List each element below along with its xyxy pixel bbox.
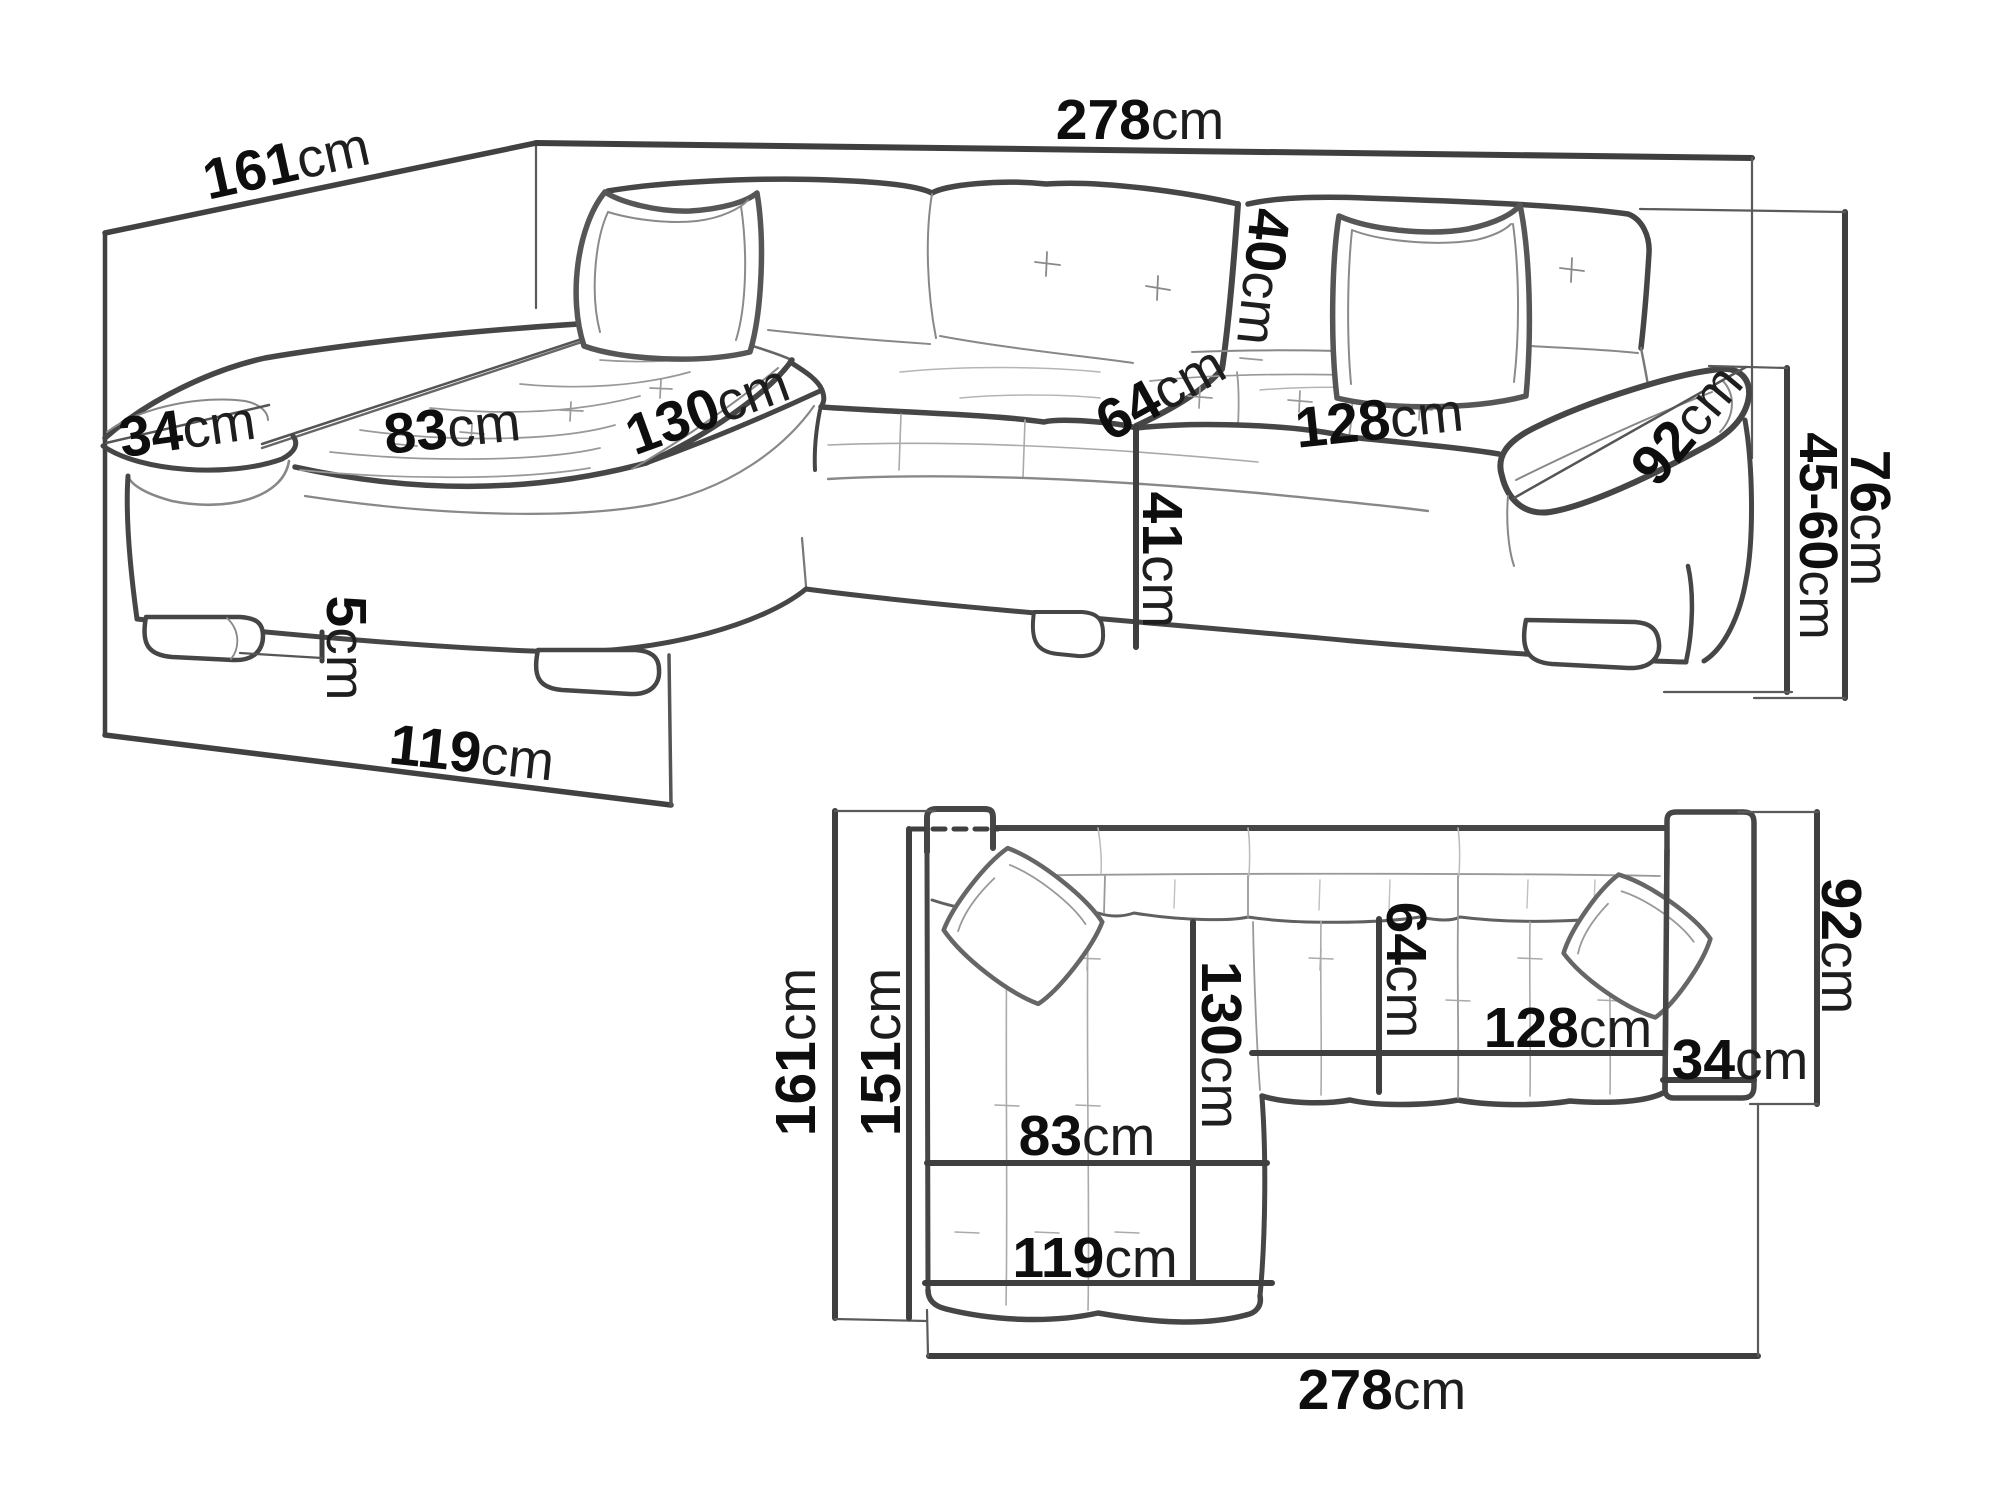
- svg-text:5cm: 5cm: [314, 595, 378, 700]
- svg-text:278cm: 278cm: [1056, 88, 1224, 152]
- svg-text:92cm: 92cm: [1809, 878, 1873, 1015]
- svg-text:278cm: 278cm: [1298, 1358, 1466, 1422]
- svg-text:151cm: 151cm: [849, 968, 913, 1136]
- svg-text:128cm: 128cm: [1484, 996, 1652, 1060]
- svg-text:34cm: 34cm: [1672, 1028, 1809, 1092]
- svg-text:41cm: 41cm: [1130, 492, 1194, 629]
- svg-text:119cm: 119cm: [386, 713, 557, 794]
- svg-text:161cm: 161cm: [764, 968, 828, 1136]
- svg-text:45-60cm: 45-60cm: [1788, 432, 1848, 639]
- svg-text:34cm: 34cm: [115, 388, 259, 470]
- svg-text:130cm: 130cm: [1189, 961, 1253, 1129]
- svg-text:64cm: 64cm: [1085, 332, 1236, 454]
- svg-text:119cm: 119cm: [1012, 1226, 1177, 1290]
- svg-text:83cm: 83cm: [1019, 1104, 1156, 1168]
- svg-text:64cm: 64cm: [1374, 902, 1438, 1039]
